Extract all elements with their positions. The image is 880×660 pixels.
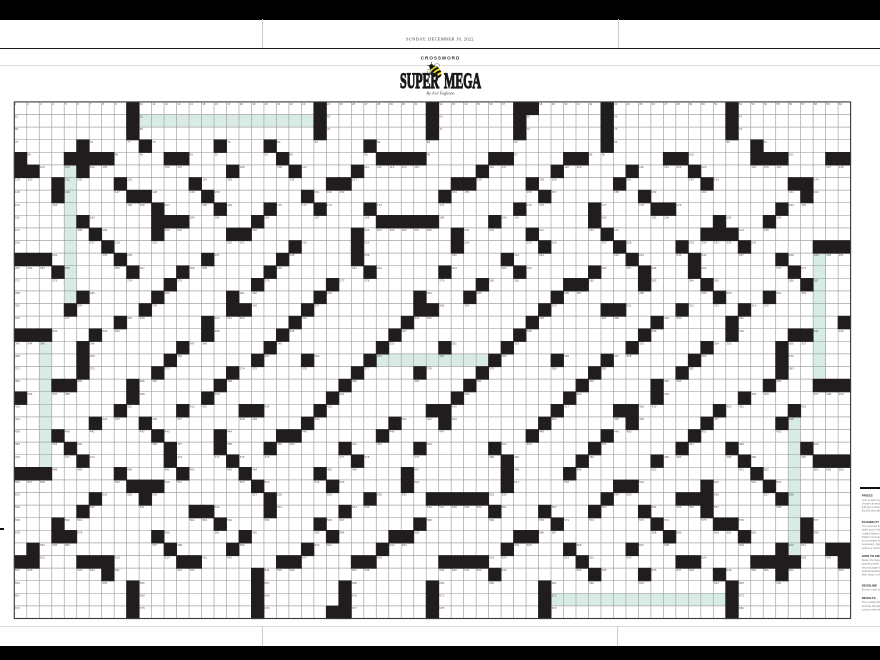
svg-text:100: 100: [689, 152, 694, 156]
svg-text:87: 87: [764, 140, 768, 144]
svg-text:410: 410: [15, 404, 20, 408]
svg-text:72: 72: [527, 127, 531, 131]
svg-text:327: 327: [602, 316, 607, 320]
svg-text:384: 384: [15, 379, 20, 383]
svg-text:589: 589: [677, 530, 682, 534]
svg-text:42: 42: [589, 102, 593, 106]
svg-text:597: 597: [152, 543, 157, 547]
svg-text:482: 482: [589, 455, 594, 459]
svg-text:412: 412: [190, 404, 195, 408]
svg-text:287: 287: [814, 278, 819, 282]
svg-text:131: 131: [65, 178, 70, 182]
svg-text:550: 550: [477, 505, 482, 509]
svg-text:512: 512: [240, 480, 245, 484]
svg-text:319: 319: [140, 316, 145, 320]
svg-text:493: 493: [227, 467, 232, 471]
svg-text:661: 661: [552, 581, 557, 585]
svg-text:425: 425: [115, 417, 120, 421]
svg-text:607: 607: [639, 543, 644, 547]
svg-text:281: 281: [514, 278, 519, 282]
svg-text:416: 416: [452, 404, 457, 408]
svg-text:83: 83: [427, 140, 431, 144]
svg-text:154: 154: [452, 190, 457, 194]
svg-text:246: 246: [702, 253, 707, 257]
svg-text:473: 473: [177, 455, 182, 459]
svg-text:66: 66: [614, 115, 618, 119]
svg-text:97: 97: [514, 152, 518, 156]
svg-text:436: 436: [639, 417, 644, 421]
svg-text:532: 532: [489, 493, 494, 497]
svg-text:497: 497: [414, 467, 419, 471]
svg-text:400: 400: [215, 392, 220, 396]
svg-text:8: 8: [102, 102, 104, 106]
svg-text:316: 316: [15, 316, 20, 320]
svg-text:309: 309: [464, 304, 469, 308]
svg-text:582: 582: [252, 530, 257, 534]
svg-text:online or send the: online or send the: [862, 546, 880, 550]
svg-text:609: 609: [739, 543, 744, 547]
svg-text:662: 662: [589, 581, 594, 585]
svg-text:270: 270: [776, 266, 781, 270]
svg-text:444: 444: [227, 430, 232, 434]
svg-text:299: 299: [702, 291, 707, 295]
svg-text:101: 101: [789, 152, 794, 156]
svg-text:520: 520: [714, 480, 719, 484]
svg-text:387: 387: [152, 379, 157, 383]
svg-text:551: 551: [502, 505, 507, 509]
svg-text:140: 140: [552, 178, 557, 182]
svg-text:23: 23: [302, 102, 306, 106]
svg-text:435: 435: [614, 417, 619, 421]
svg-text:24: 24: [327, 102, 331, 106]
svg-text:648: 648: [689, 568, 694, 572]
svg-text:666: 666: [776, 581, 781, 585]
svg-text:658: 658: [352, 581, 357, 585]
svg-text:395: 395: [776, 379, 781, 383]
svg-text:498: 498: [514, 467, 519, 471]
svg-text:481: 481: [514, 455, 519, 459]
svg-text:678: 678: [439, 606, 444, 610]
svg-text:183: 183: [90, 215, 95, 219]
svg-text:106: 106: [165, 165, 170, 169]
svg-text:134: 134: [202, 178, 207, 182]
svg-text:368: 368: [627, 354, 632, 358]
svg-text:149: 149: [190, 190, 195, 194]
svg-text:247: 247: [739, 253, 744, 257]
svg-text:483: 483: [664, 455, 669, 459]
svg-text:549: 549: [464, 505, 469, 509]
svg-text:121: 121: [664, 165, 669, 169]
svg-text:334: 334: [115, 329, 120, 333]
svg-text:645: 645: [602, 568, 607, 572]
svg-text:413: 413: [202, 404, 207, 408]
svg-text:143: 143: [714, 178, 719, 182]
svg-text:442: 442: [140, 430, 145, 434]
svg-text:162: 162: [814, 190, 819, 194]
svg-text:653: 653: [839, 568, 844, 572]
svg-text:673: 673: [739, 593, 744, 597]
svg-text:332: 332: [52, 329, 57, 333]
svg-text:239: 239: [365, 253, 370, 257]
svg-text:411: 411: [127, 404, 132, 408]
svg-text:30: 30: [402, 102, 406, 106]
svg-text:91: 91: [190, 152, 194, 156]
svg-text:351: 351: [452, 341, 457, 345]
svg-text:179: 179: [677, 203, 682, 207]
svg-text:586: 586: [539, 530, 544, 534]
svg-text:311: 311: [627, 304, 632, 308]
svg-text:277: 277: [340, 278, 345, 282]
svg-text:266: 266: [602, 266, 607, 270]
svg-text:580: 580: [165, 530, 170, 534]
svg-text:559: 559: [15, 518, 20, 522]
svg-text:222: 222: [302, 241, 307, 245]
svg-text:347: 347: [190, 341, 195, 345]
svg-text:205: 205: [390, 228, 395, 232]
svg-text:168: 168: [202, 203, 207, 207]
svg-text:274: 274: [127, 278, 132, 282]
svg-text:214: 214: [739, 228, 744, 232]
svg-text:254: 254: [40, 266, 45, 270]
svg-text:420: 420: [727, 404, 732, 408]
svg-text:92: 92: [215, 152, 219, 156]
svg-text:404: 404: [664, 392, 669, 396]
svg-text:467: 467: [689, 442, 694, 446]
svg-text:329: 329: [664, 316, 669, 320]
svg-text:378: 378: [427, 367, 432, 371]
svg-text:255: 255: [65, 266, 70, 270]
svg-text:17: 17: [227, 102, 231, 106]
svg-text:570: 570: [539, 518, 544, 522]
svg-text:516: 516: [414, 480, 419, 484]
svg-text:123: 123: [702, 165, 707, 169]
svg-text:207: 207: [414, 228, 419, 232]
svg-text:644: 644: [577, 568, 582, 572]
svg-text:116: 116: [489, 165, 494, 169]
svg-text:71: 71: [439, 127, 443, 131]
svg-text:485: 485: [727, 455, 732, 459]
svg-text:339: 339: [652, 329, 657, 333]
svg-text:147: 147: [115, 190, 120, 194]
svg-text:9: 9: [115, 102, 117, 106]
svg-text:313: 313: [714, 304, 719, 308]
svg-text:20: 20: [265, 102, 269, 106]
svg-text:680: 680: [739, 606, 744, 610]
svg-text:1: 1: [15, 102, 17, 106]
svg-text:479: 479: [414, 455, 419, 459]
svg-text:220: 220: [227, 241, 232, 245]
svg-text:459: 459: [277, 442, 282, 446]
svg-text:5: 5: [65, 102, 67, 106]
svg-text:647: 647: [677, 568, 682, 572]
svg-text:194: 194: [664, 215, 669, 219]
svg-text:244: 244: [639, 253, 644, 257]
svg-text:630: 630: [90, 568, 95, 572]
svg-text:189: 189: [439, 215, 444, 219]
svg-text:233: 233: [751, 241, 756, 245]
svg-text:618: 618: [377, 556, 382, 560]
svg-text:284: 284: [689, 278, 694, 282]
svg-text:57: 57: [801, 102, 805, 106]
svg-text:221: 221: [240, 241, 245, 245]
svg-text:654: 654: [15, 581, 20, 585]
svg-text:125: 125: [764, 165, 769, 169]
svg-text:338: 338: [527, 329, 532, 333]
svg-text:152: 152: [327, 190, 332, 194]
svg-text:438: 438: [789, 417, 794, 421]
svg-text:84: 84: [514, 140, 518, 144]
svg-text:461: 461: [352, 442, 357, 446]
svg-text:430: 430: [315, 417, 320, 421]
svg-text:348: 348: [202, 341, 207, 345]
svg-text:380: 380: [552, 367, 557, 371]
svg-text:248: 248: [789, 253, 794, 257]
svg-text:112: 112: [377, 165, 382, 169]
svg-text:236: 236: [127, 253, 132, 257]
svg-text:593: 593: [814, 530, 819, 534]
svg-text:142: 142: [689, 178, 694, 182]
svg-text:12: 12: [165, 102, 169, 106]
svg-text:564: 564: [227, 518, 232, 522]
svg-text:523: 523: [15, 493, 20, 497]
svg-text:480: 480: [489, 455, 494, 459]
svg-text:423: 423: [15, 417, 20, 421]
svg-text:41: 41: [577, 102, 581, 106]
svg-text:635: 635: [277, 568, 282, 572]
svg-text:225: 225: [527, 241, 532, 245]
svg-text:530: 530: [377, 493, 382, 497]
svg-text:column with winners': column with winners': [862, 608, 880, 612]
svg-text:511: 511: [177, 480, 182, 484]
svg-text:85: 85: [614, 140, 618, 144]
svg-text:292: 292: [252, 291, 257, 295]
svg-text:389: 389: [352, 379, 357, 383]
svg-text:283: 283: [652, 278, 657, 282]
svg-text:252: 252: [15, 266, 20, 270]
svg-text:472: 472: [90, 455, 95, 459]
svg-text:341: 341: [814, 329, 819, 333]
svg-text:437: 437: [714, 417, 719, 421]
svg-text:402: 402: [464, 392, 469, 396]
svg-text:342: 342: [839, 329, 844, 333]
svg-text:4: 4: [52, 102, 54, 106]
svg-text:668: 668: [140, 593, 145, 597]
svg-text:226: 226: [552, 241, 557, 245]
svg-text:78: 78: [152, 140, 156, 144]
svg-text:133: 133: [127, 178, 132, 182]
svg-text:617: 617: [302, 556, 307, 560]
svg-text:652: 652: [789, 568, 794, 572]
svg-text:32: 32: [439, 102, 443, 106]
svg-text:157: 157: [552, 190, 557, 194]
svg-text:98: 98: [589, 152, 593, 156]
svg-text:90: 90: [140, 152, 144, 156]
svg-text:196: 196: [776, 215, 781, 219]
svg-text:381: 381: [602, 367, 607, 371]
svg-text:231: 231: [714, 241, 719, 245]
svg-text:599: 599: [240, 543, 245, 547]
svg-text:94: 94: [290, 152, 294, 156]
svg-text:272: 272: [15, 278, 20, 282]
svg-text:159: 159: [652, 190, 657, 194]
svg-text:553: 553: [602, 505, 607, 509]
svg-text:671: 671: [439, 593, 444, 597]
svg-text:377: 377: [365, 367, 370, 371]
svg-text:376: 376: [302, 367, 307, 371]
svg-text:306: 306: [252, 304, 257, 308]
svg-text:117: 117: [502, 165, 507, 169]
svg-text:298: 298: [639, 291, 644, 295]
svg-text:237: 237: [215, 253, 220, 257]
svg-text:398: 398: [65, 392, 70, 396]
svg-text:38: 38: [539, 102, 543, 106]
svg-text:113: 113: [390, 165, 395, 169]
svg-text:80: 80: [277, 140, 281, 144]
svg-text:674: 674: [15, 606, 20, 610]
svg-text:567: 567: [340, 518, 345, 522]
svg-text:46: 46: [652, 102, 656, 106]
svg-text:176: 176: [539, 203, 544, 207]
svg-text:409: 409: [839, 392, 844, 396]
svg-text:192: 192: [602, 215, 607, 219]
svg-text:Entries must be: Entries must be: [862, 588, 880, 592]
svg-text:405: 405: [751, 392, 756, 396]
svg-text:394: 394: [677, 379, 682, 383]
svg-text:64: 64: [439, 115, 443, 119]
svg-text:594: 594: [40, 543, 45, 547]
svg-text:471: 471: [65, 455, 70, 459]
svg-text:574: 574: [664, 518, 669, 522]
svg-text:415: 415: [327, 404, 332, 408]
svg-text:324: 324: [414, 316, 419, 320]
svg-text:546: 546: [427, 505, 432, 509]
svg-text:358: 358: [15, 354, 20, 358]
svg-text:261: 261: [352, 266, 357, 270]
svg-text:557: 557: [714, 505, 719, 509]
svg-text:486: 486: [751, 455, 756, 459]
svg-text:587: 587: [552, 530, 557, 534]
svg-text:132: 132: [77, 178, 82, 182]
svg-text:48: 48: [677, 102, 681, 106]
svg-text:367: 367: [614, 354, 619, 358]
svg-text:40: 40: [564, 102, 568, 106]
svg-text:212: 212: [589, 228, 594, 232]
svg-text:464: 464: [502, 442, 507, 446]
svg-text:$1,000 and also: $1,000 and also: [862, 509, 880, 513]
svg-text:43: 43: [614, 102, 618, 106]
svg-text:204: 204: [377, 228, 382, 232]
svg-text:269: 269: [702, 266, 707, 270]
svg-text:111: 111: [365, 165, 370, 169]
svg-text:391: 391: [477, 379, 482, 383]
svg-text:457: 457: [177, 442, 182, 446]
svg-text:669: 669: [265, 593, 270, 597]
svg-text:622: 622: [589, 556, 594, 560]
svg-text:240: 240: [452, 253, 457, 257]
svg-text:547: 547: [439, 505, 444, 509]
svg-text:468: 468: [739, 442, 744, 446]
svg-text:611: 611: [801, 543, 806, 547]
svg-text:542: 542: [215, 505, 220, 509]
svg-text:175: 175: [527, 203, 532, 207]
svg-text:583: 583: [315, 530, 320, 534]
svg-text:294: 294: [427, 291, 432, 295]
svg-text:399: 399: [140, 392, 145, 396]
svg-text:343: 343: [15, 341, 20, 345]
svg-text:317: 317: [65, 316, 70, 320]
svg-text:37: 37: [502, 102, 506, 106]
svg-text:616: 616: [227, 556, 232, 560]
svg-text:39: 39: [552, 102, 556, 106]
svg-text:256: 256: [115, 266, 120, 270]
svg-text:171: 171: [302, 203, 307, 207]
svg-text:533: 533: [502, 493, 507, 497]
svg-text:74: 74: [739, 127, 743, 131]
svg-text:577: 577: [814, 518, 819, 522]
svg-text:271: 271: [801, 266, 806, 270]
svg-text:293: 293: [327, 291, 332, 295]
svg-text:7: 7: [90, 102, 92, 106]
svg-text:679: 679: [552, 606, 557, 610]
svg-text:326: 326: [539, 316, 544, 320]
svg-text:610: 610: [789, 543, 794, 547]
svg-text:360: 360: [177, 354, 182, 358]
svg-text:439: 439: [15, 430, 20, 434]
svg-text:264: 264: [502, 266, 507, 270]
svg-text:517: 517: [514, 480, 519, 484]
svg-text:163: 163: [15, 203, 20, 207]
svg-text:172: 172: [327, 203, 332, 207]
svg-text:2: 2: [28, 102, 30, 106]
svg-text:36: 36: [489, 102, 493, 106]
svg-text:325: 325: [427, 316, 432, 320]
svg-text:476: 476: [265, 455, 270, 459]
svg-text:628: 628: [28, 568, 33, 572]
svg-text:328: 328: [614, 316, 619, 320]
svg-text:47: 47: [664, 102, 668, 106]
svg-text:63: 63: [327, 115, 331, 119]
svg-text:198: 198: [77, 228, 82, 232]
svg-text:504: 504: [826, 467, 831, 471]
svg-text:603: 603: [402, 543, 407, 547]
svg-text:519: 519: [639, 480, 644, 484]
svg-text:289: 289: [90, 291, 95, 295]
svg-text:365: 365: [502, 354, 507, 358]
svg-text:120: 120: [639, 165, 644, 169]
svg-text:632: 632: [177, 568, 182, 572]
svg-text:370: 370: [789, 354, 794, 358]
svg-text:491: 491: [165, 467, 170, 471]
svg-text:375: 375: [252, 367, 257, 371]
svg-text:109: 109: [277, 165, 282, 169]
svg-text:556: 556: [689, 505, 694, 509]
svg-text:487: 487: [801, 455, 806, 459]
svg-text:356: 356: [789, 341, 794, 345]
svg-text:548: 548: [452, 505, 457, 509]
svg-text:227: 227: [602, 241, 607, 245]
svg-text:322: 322: [240, 316, 245, 320]
svg-text:310: 310: [552, 304, 557, 308]
svg-text:34: 34: [464, 102, 468, 106]
svg-text:31: 31: [414, 102, 418, 106]
svg-text:156: 156: [527, 190, 532, 194]
svg-text:62: 62: [140, 115, 144, 119]
svg-text:243: 243: [614, 253, 619, 257]
svg-text:453: 453: [15, 442, 20, 446]
svg-text:665: 665: [739, 581, 744, 585]
svg-text:619: 619: [489, 556, 494, 560]
svg-text:268: 268: [652, 266, 657, 270]
